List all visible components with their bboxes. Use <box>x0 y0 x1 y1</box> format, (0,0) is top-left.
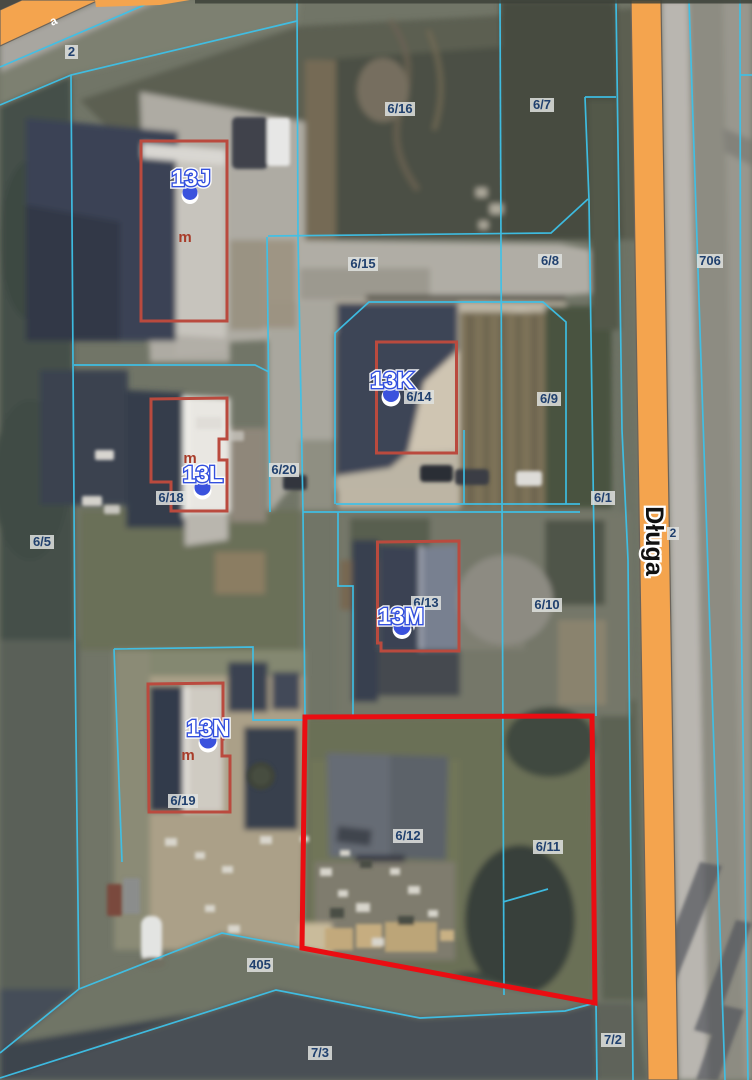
svg-text:13N: 13N <box>186 715 229 741</box>
svg-text:7/3: 7/3 <box>311 1045 329 1060</box>
svg-text:6/9: 6/9 <box>540 391 558 406</box>
svg-text:706: 706 <box>699 253 721 268</box>
svg-text:6/19: 6/19 <box>170 793 195 808</box>
svg-text:13M: 13M <box>378 603 424 629</box>
svg-text:13K: 13K <box>370 367 413 393</box>
svg-text:m: m <box>181 747 194 764</box>
svg-text:m: m <box>183 450 196 467</box>
svg-text:6/20: 6/20 <box>271 462 296 477</box>
svg-text:6/15: 6/15 <box>350 256 375 271</box>
svg-text:6/12: 6/12 <box>395 828 420 843</box>
svg-text:7/2: 7/2 <box>604 1032 622 1047</box>
svg-text:6/10: 6/10 <box>534 597 559 612</box>
svg-text:6/5: 6/5 <box>33 534 51 549</box>
svg-text:2: 2 <box>670 526 677 540</box>
svg-text:13J: 13J <box>171 165 210 191</box>
svg-text:m: m <box>178 229 191 246</box>
svg-text:405: 405 <box>249 957 271 972</box>
svg-text:6/1: 6/1 <box>594 490 612 505</box>
svg-text:6/7: 6/7 <box>533 97 551 112</box>
svg-text:6/18: 6/18 <box>158 490 183 505</box>
svg-text:Długa: Długa <box>640 506 668 577</box>
svg-text:6/8: 6/8 <box>541 253 559 268</box>
svg-text:6/11: 6/11 <box>536 839 561 854</box>
svg-text:2: 2 <box>68 44 75 59</box>
svg-text:6/16: 6/16 <box>387 101 412 116</box>
